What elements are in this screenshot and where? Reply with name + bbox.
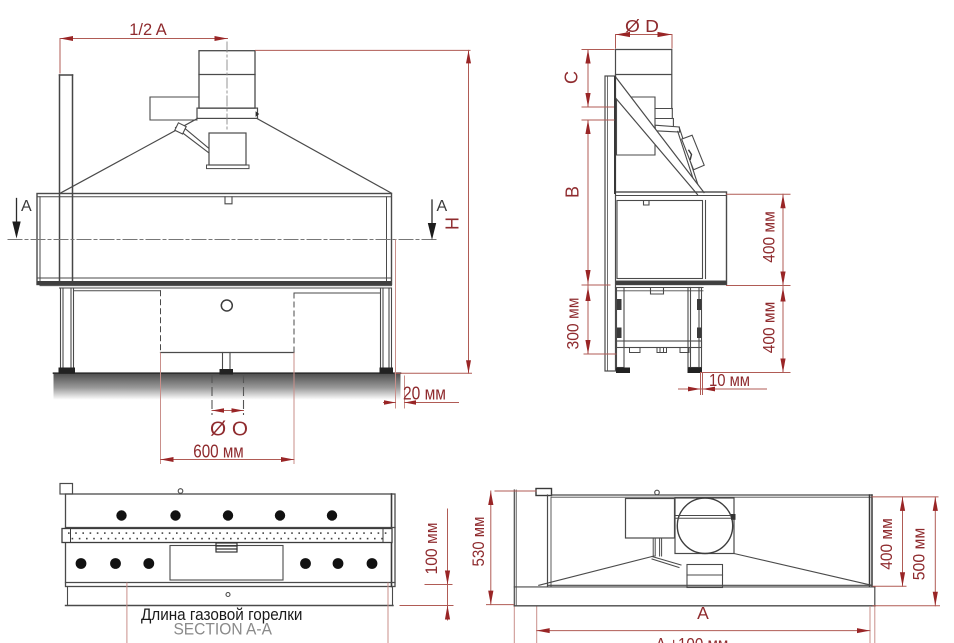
svg-text:Ø D: Ø D — [625, 16, 659, 36]
svg-text:A: A — [437, 198, 448, 215]
svg-text:400 мм: 400 мм — [760, 211, 779, 263]
svg-text:1/2 A: 1/2 A — [129, 21, 167, 39]
svg-text:A +100 мм: A +100 мм — [656, 634, 729, 643]
svg-text:600 мм: 600 мм — [193, 442, 244, 462]
svg-text:530 мм: 530 мм — [469, 517, 488, 567]
svg-text:500 мм: 500 мм — [910, 528, 929, 581]
svg-text:20 мм: 20 мм — [403, 384, 446, 404]
svg-text:10 мм: 10 мм — [709, 370, 750, 390]
svg-text:300 мм: 300 мм — [564, 298, 583, 350]
svg-text:A: A — [21, 198, 32, 215]
svg-text:B: B — [563, 186, 583, 198]
svg-text:SECTION A-A: SECTION A-A — [173, 620, 272, 639]
svg-text:A: A — [697, 603, 709, 623]
svg-text:400 мм: 400 мм — [877, 518, 896, 570]
svg-text:Ø O: Ø O — [210, 419, 248, 441]
svg-text:100 мм: 100 мм — [422, 523, 441, 575]
svg-text:H: H — [443, 217, 463, 230]
svg-text:C: C — [562, 71, 582, 84]
svg-text:400 мм: 400 мм — [760, 302, 779, 354]
